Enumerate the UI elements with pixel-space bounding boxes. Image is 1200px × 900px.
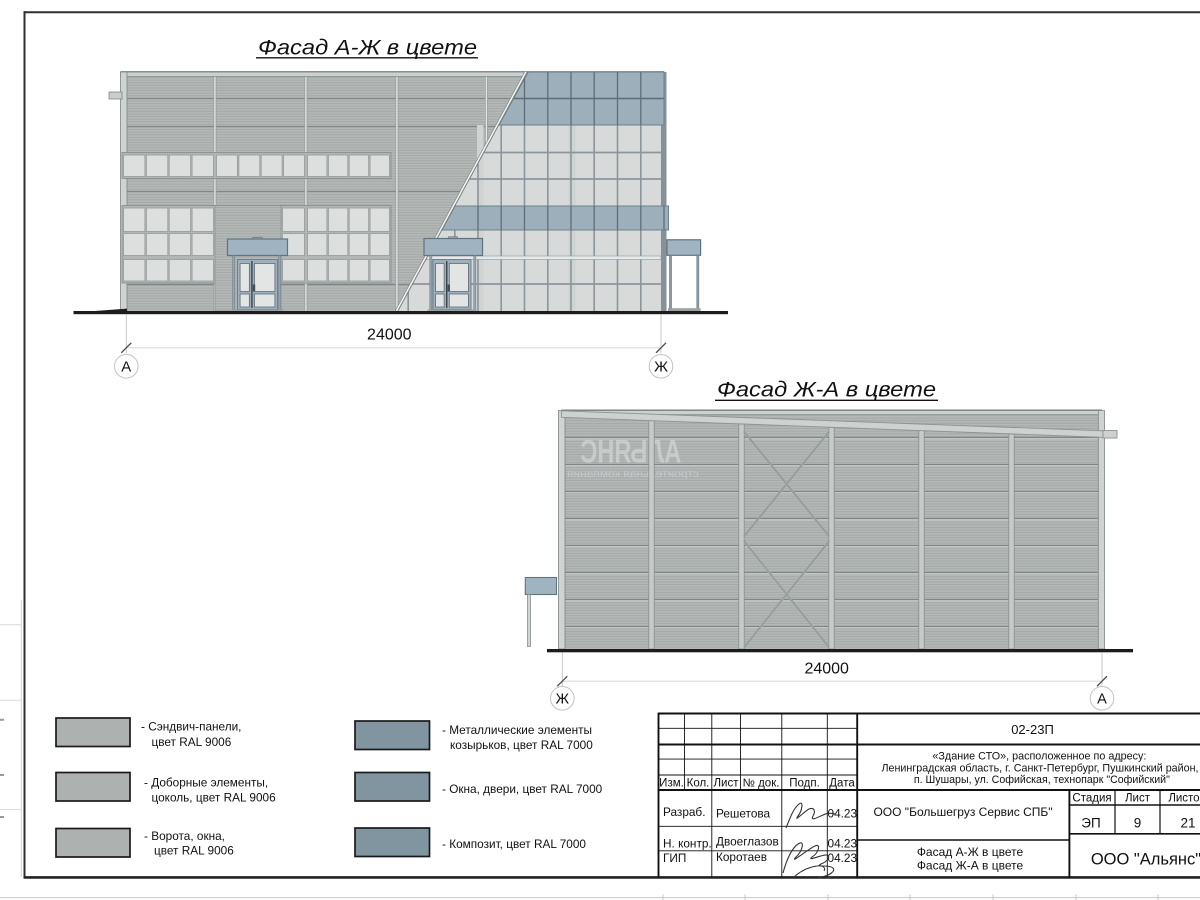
svg-text:козырьков, цвет RAL 7000: козырьков, цвет RAL 7000 (450, 738, 593, 752)
svg-text:Решетова: Решетова (716, 807, 771, 821)
svg-text:ООО "Большегруз Сервис СПБ": ООО "Большегруз Сервис СПБ" (873, 805, 1052, 819)
svg-text:02-23П: 02-23П (1011, 722, 1054, 737)
svg-text:строительная компания: строительная компания (567, 468, 699, 480)
svg-text:Лист: Лист (714, 777, 740, 789)
svg-text:04.23: 04.23 (828, 837, 858, 851)
svg-text:04.23: 04.23 (828, 851, 858, 865)
svg-text:Фасад А-Ж в цвете: Фасад А-Ж в цвете (917, 845, 1024, 859)
svg-text:цоколь, цвет RAL 9006: цоколь, цвет RAL 9006 (152, 790, 277, 804)
svg-text:Ленинградская область, г. Санк: Ленинградская область, г. Санкт-Петербур… (882, 763, 1199, 775)
svg-text:цвет RAL 9006: цвет RAL 9006 (154, 844, 234, 858)
svg-text:- Ворота, окна,: - Ворота, окна, (144, 829, 225, 843)
svg-text:Фасад Ж-А в цвете: Фасад Ж-А в цвете (917, 859, 1024, 873)
svg-text:Ж: Ж (654, 359, 668, 376)
svg-text:Изм.: Изм. (659, 777, 684, 789)
svg-text:Лист: Лист (1125, 793, 1151, 805)
svg-text:ООО "Альянс": ООО "Альянс" (1091, 851, 1200, 869)
svg-text:А: А (121, 359, 131, 376)
svg-text:24000: 24000 (367, 327, 412, 344)
svg-text:Двоеглазов: Двоеглазов (716, 835, 779, 849)
svg-text:- Композит, цвет RAL 7000: - Композит, цвет RAL 7000 (442, 837, 586, 851)
svg-text:- Окна, двери, цвет RAL 7000: - Окна, двери, цвет RAL 7000 (442, 782, 603, 796)
svg-text:Ж: Ж (556, 691, 570, 707)
svg-text:Дата: Дата (829, 777, 855, 789)
svg-text:- Металлические элементы: - Металлические элементы (442, 723, 592, 737)
svg-text:Стадия: Стадия (1072, 793, 1111, 805)
svg-text:№ док.: № док. (743, 777, 780, 789)
svg-text:«Здание СТО», расположенное по: «Здание СТО», расположенное по адресу: (932, 751, 1146, 763)
svg-text:АЛЬЯНС: АЛЬЯНС (580, 434, 681, 470)
svg-text:- Доборные элементы,: - Доборные элементы, (144, 776, 268, 790)
svg-text:цвет RAL 9006: цвет RAL 9006 (152, 735, 232, 749)
svg-text:- Сэндвич-панели,: - Сэндвич-панели, (141, 720, 241, 734)
svg-text:Фасад Ж-А в цвете: Фасад Ж-А в цвете (717, 378, 936, 402)
svg-text:Н. контр.: Н. контр. (663, 837, 712, 851)
svg-text:Разраб.: Разраб. (663, 805, 705, 819)
svg-text:9: 9 (1134, 816, 1142, 831)
svg-text:Листов: Листов (1168, 793, 1200, 805)
svg-text:Подп.: Подп. (789, 777, 820, 789)
svg-text:Коротаев: Коротаев (716, 850, 767, 864)
svg-text:ГИП: ГИП (663, 851, 686, 865)
svg-text:п. Шушары, ул. Софийская, техн: п. Шушары, ул. Софийская, технопарк "Соф… (914, 774, 1170, 786)
svg-text:21: 21 (1180, 816, 1195, 831)
svg-text:Фасад А-Ж в цвете: Фасад А-Ж в цвете (258, 36, 477, 60)
svg-text:Кол.: Кол. (687, 777, 710, 789)
svg-text:ЭП: ЭП (1081, 816, 1100, 831)
svg-text:А: А (1097, 691, 1107, 707)
svg-text:24000: 24000 (804, 661, 849, 678)
